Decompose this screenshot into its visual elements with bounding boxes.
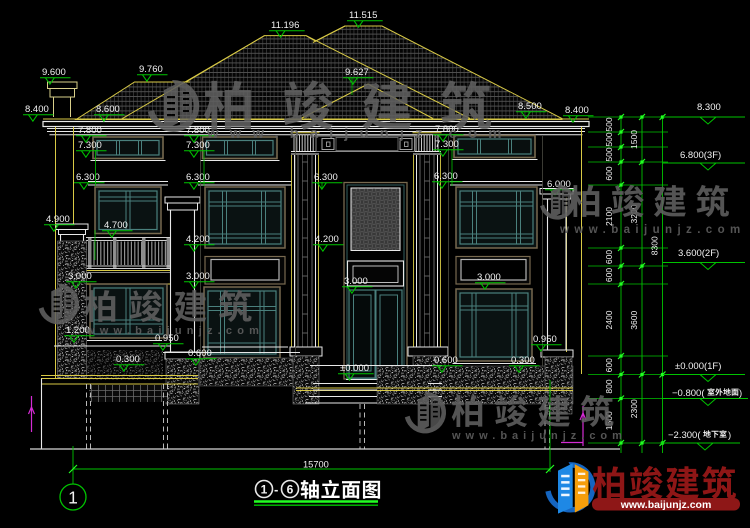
svg-text:11.196: 11.196 <box>271 20 299 31</box>
svg-text:11.515: 11.515 <box>349 10 377 21</box>
svg-text:0.600: 0.600 <box>434 355 458 366</box>
svg-text:1500: 1500 <box>629 130 639 149</box>
svg-text:−0.800(: −0.800( <box>672 388 705 399</box>
svg-text:www.baijunjz.com: www.baijunjz.com <box>206 125 512 142</box>
svg-text:7.800: 7.800 <box>78 125 102 136</box>
svg-text:6.800(3F): 6.800(3F) <box>680 150 721 161</box>
svg-text:6.300: 6.300 <box>314 172 338 183</box>
svg-text:600: 600 <box>604 166 614 180</box>
svg-text:www.baijunjz.com: www.baijunjz.com <box>620 499 712 511</box>
svg-text:www.baijunjz.com: www.baijunjz.com <box>451 430 627 442</box>
svg-text:15700: 15700 <box>303 460 329 470</box>
svg-text:4.700: 4.700 <box>104 220 128 231</box>
svg-text:4.900: 4.900 <box>46 214 70 225</box>
svg-text:6: 6 <box>287 483 294 497</box>
svg-text:500: 500 <box>604 147 614 161</box>
svg-text:9.600: 9.600 <box>42 67 66 78</box>
svg-text:0.600: 0.600 <box>188 348 212 359</box>
svg-text:2400: 2400 <box>604 310 614 329</box>
svg-text:600: 600 <box>604 268 614 282</box>
svg-text:3.000: 3.000 <box>344 276 368 287</box>
svg-text:6.300: 6.300 <box>434 171 458 182</box>
svg-text:7.300: 7.300 <box>78 140 102 151</box>
svg-text:600: 600 <box>604 358 614 372</box>
svg-text:8.400: 8.400 <box>565 105 589 116</box>
svg-text:3.000: 3.000 <box>68 271 92 282</box>
svg-text:0.300: 0.300 <box>511 355 535 366</box>
svg-text:1: 1 <box>261 483 268 497</box>
svg-text:): ) <box>728 430 731 441</box>
svg-text:0.950: 0.950 <box>533 334 557 345</box>
svg-text:-: - <box>274 482 278 497</box>
svg-text:600: 600 <box>604 250 614 264</box>
svg-text:8300: 8300 <box>650 236 660 255</box>
svg-text:4.200: 4.200 <box>315 234 339 245</box>
svg-text:): ) <box>739 388 742 399</box>
svg-text:www.baijunjz.com: www.baijunjz.com <box>559 224 746 236</box>
svg-text:6.300: 6.300 <box>76 172 100 183</box>
svg-text:8.500: 8.500 <box>518 101 542 112</box>
svg-text:3600: 3600 <box>629 311 639 330</box>
svg-text:8.300: 8.300 <box>697 102 721 113</box>
svg-text:2300: 2300 <box>629 399 639 418</box>
svg-text:3.000: 3.000 <box>477 272 501 283</box>
svg-text:4.200: 4.200 <box>186 234 210 245</box>
svg-text:www.baijunjz.com: www.baijunjz.com <box>85 325 264 337</box>
svg-text:800: 800 <box>604 379 614 393</box>
svg-text:−2.300(: −2.300( <box>668 430 701 441</box>
svg-text:9.760: 9.760 <box>139 64 163 75</box>
svg-text:500: 500 <box>604 132 614 146</box>
svg-text:3.000: 3.000 <box>186 271 210 282</box>
svg-text:8.600: 8.600 <box>96 104 120 115</box>
svg-text:500: 500 <box>604 117 614 131</box>
svg-text:±0.000: ±0.000 <box>340 363 369 374</box>
svg-text:9.627: 9.627 <box>345 67 369 78</box>
svg-text:3.600(2F): 3.600(2F) <box>678 248 719 259</box>
svg-text:±0.000(1F): ±0.000(1F) <box>675 361 721 372</box>
svg-text:8.400: 8.400 <box>25 104 49 115</box>
svg-text:1: 1 <box>68 488 78 508</box>
svg-text:6.300: 6.300 <box>186 172 210 183</box>
svg-text:0.300: 0.300 <box>116 354 140 365</box>
